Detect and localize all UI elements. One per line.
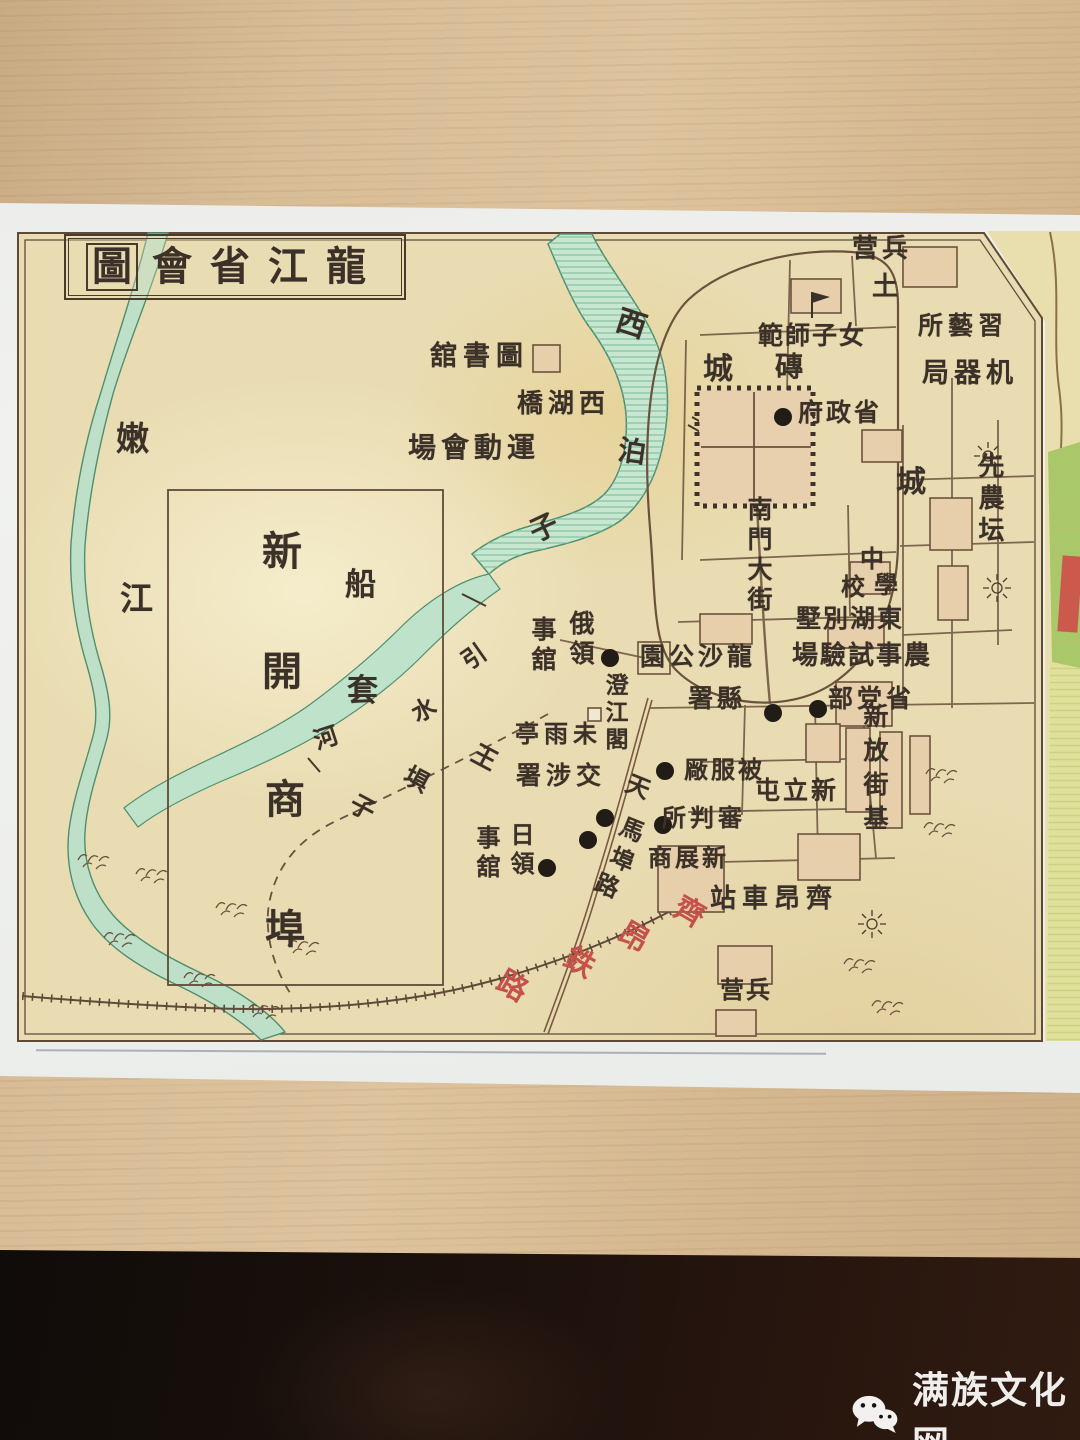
watermark-text: 满族文化网	[912, 1360, 1080, 1440]
map-title-boxed-char: 圖	[86, 243, 138, 291]
pavilion-marker	[588, 708, 601, 721]
wechat-icon	[850, 1391, 900, 1437]
library-building-box	[533, 345, 560, 372]
bridge-marks	[308, 417, 740, 772]
map-title-text: 會省江龍	[152, 247, 384, 287]
map-border	[18, 233, 1042, 1041]
river-nenjiang	[68, 233, 285, 1040]
buildings	[533, 247, 972, 1036]
map-linework	[0, 0, 1080, 1440]
dashed-trail	[268, 714, 548, 996]
rivers-and-lakes	[68, 233, 667, 1040]
adjacent-map-strip	[987, 231, 1080, 1041]
south-gate-street	[757, 506, 770, 704]
diagonal-road	[544, 698, 652, 1034]
photo-of-map-on-table: 舘書圖橋湖西場會動運嫩江西泊子引水河磚城土城营兵範師子女所藝習局器机府政省先農坛…	[0, 0, 1080, 1440]
map-title-box: 圖 會省江龍	[64, 234, 406, 300]
watermark: 满族文化网	[850, 1360, 1080, 1440]
inner-brick-city	[697, 388, 813, 506]
